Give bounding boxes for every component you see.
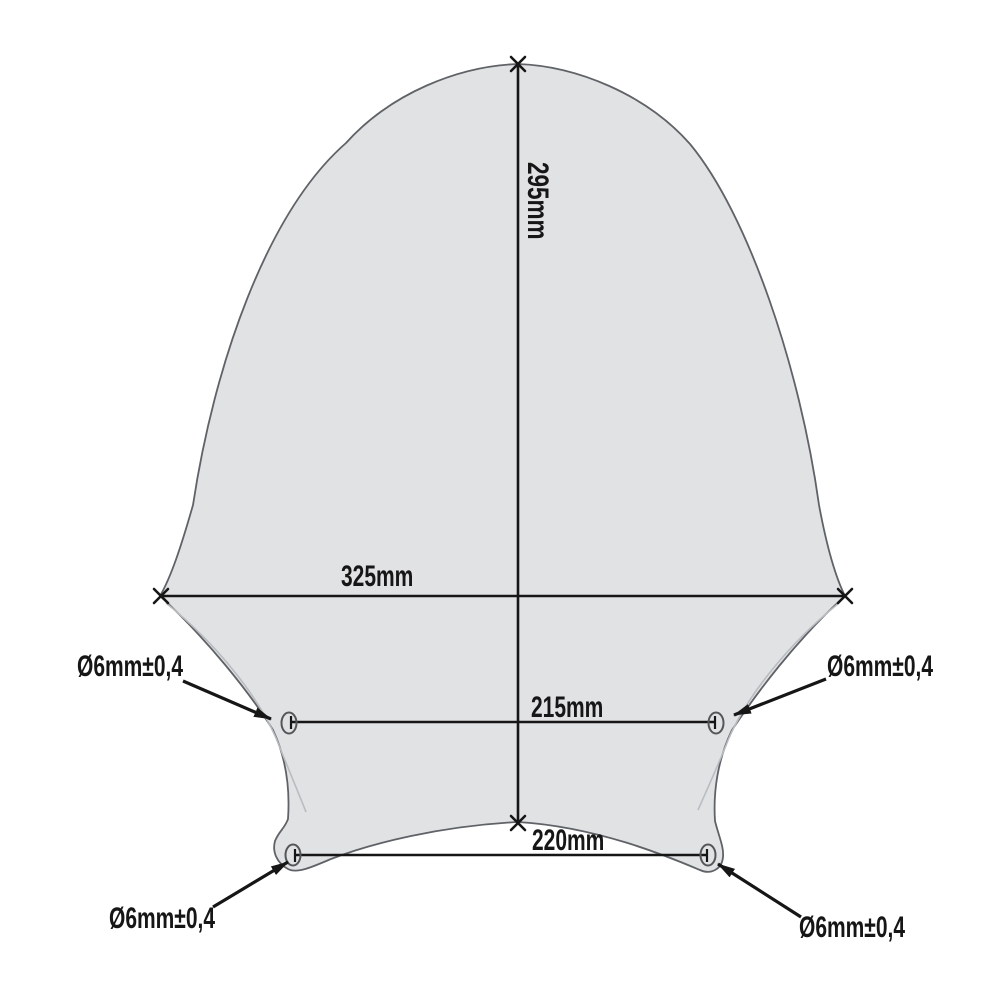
- arrow-bottom-right-hole: [718, 864, 801, 917]
- label-span-220: 220mm: [532, 825, 604, 857]
- label-hole-bottom-right: Ø6mm±0,4: [799, 912, 905, 944]
- diagram-canvas: 295mm 325mm 215mm 220mm Ø6mm±0,4 Ø6mm±0,…: [0, 0, 1000, 1000]
- label-span-215: 215mm: [531, 692, 603, 724]
- label-hole-mid-left: Ø6mm±0,4: [77, 651, 183, 683]
- label-hole-bottom-left: Ø6mm±0,4: [109, 903, 215, 935]
- label-hole-mid-right: Ø6mm±0,4: [827, 651, 933, 683]
- windscreen-outline: [160, 64, 845, 872]
- label-height-295: 295mm: [521, 162, 555, 240]
- arrow-bottom-left-hole: [213, 862, 288, 907]
- label-width-325: 325mm: [341, 561, 413, 593]
- windscreen-technical-drawing: 295mm 325mm 215mm 220mm Ø6mm±0,4 Ø6mm±0,…: [0, 0, 1000, 1000]
